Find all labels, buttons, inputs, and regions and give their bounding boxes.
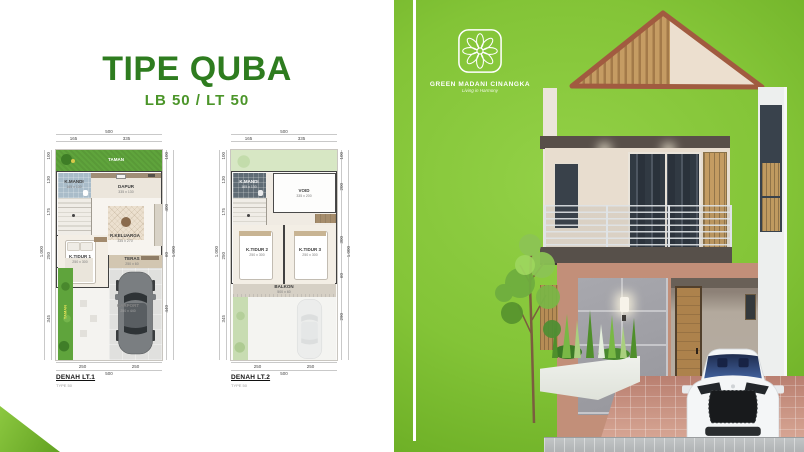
- dim-line: [56, 134, 162, 135]
- dim-label: 100: [221, 152, 226, 160]
- dim-label: 1.000: [214, 246, 219, 257]
- sink-icon: [116, 174, 126, 180]
- dim-label: 335: [298, 136, 306, 141]
- room-label-ktidur1: K.TIDUR 1250 x 300: [69, 254, 91, 264]
- dim-label: 290: [339, 313, 344, 321]
- dim-label: 250: [307, 364, 315, 369]
- bush-icon: [71, 159, 75, 163]
- plan-lt1-plot: TAMAN K.MANDI165 x 130 DAPUR335 x 130 R.…: [56, 150, 162, 360]
- page-subtitle: LB 50 / LT 50: [0, 92, 394, 109]
- dim-label: 130: [221, 176, 226, 184]
- dim-label: 130: [46, 176, 51, 184]
- dim-label: 500: [280, 129, 288, 134]
- room-label-taman-side: TAMAN: [63, 305, 68, 319]
- dim-label: 1.000: [346, 246, 351, 257]
- floor-plan-lt2: 500 165 335 100 130 175 250 345 1.000 10…: [231, 150, 337, 360]
- dim-line: [226, 150, 227, 360]
- dim-label: 60: [164, 252, 169, 257]
- room-label-kmandi: K.MANDI165 x 130: [239, 179, 258, 189]
- ghost-car-top-view: [289, 298, 330, 360]
- dim-label: 1.000: [171, 246, 176, 257]
- stove-icon: [148, 174, 155, 178]
- dim-line: [56, 141, 162, 142]
- dim-label: 100: [46, 152, 51, 160]
- dim-label: 250: [254, 364, 262, 369]
- dim-label: 200: [339, 183, 344, 191]
- dim-line: [56, 362, 162, 363]
- wardrobe-icon: [94, 237, 107, 242]
- interior-window: [745, 294, 756, 320]
- brand-logo: GREEN MADANI CINANGKA Living in Harmony: [424, 28, 536, 93]
- dim-label: 500: [105, 129, 113, 134]
- dim-line: [341, 150, 342, 360]
- paver-walkway: [544, 437, 804, 452]
- room-label-kmandi: K.MANDI165 x 130: [64, 179, 83, 189]
- page-title: TIPE QUBA: [0, 50, 394, 89]
- stairs-post-icon: [247, 214, 250, 217]
- pillow-icon: [67, 242, 80, 251]
- side-wood-panel: [762, 198, 780, 231]
- tree: [490, 225, 574, 425]
- toilet-icon: [258, 190, 263, 196]
- divider-line: [413, 0, 416, 441]
- dim-line: [231, 134, 337, 135]
- dim-label: 300: [339, 236, 344, 244]
- dim-label: 100: [339, 152, 344, 160]
- room-label-dapur: DAPUR335 x 130: [118, 184, 134, 194]
- room-label-rkeluarga: R.KELUARGA335 x 270: [110, 233, 140, 243]
- plan-lt2-plot: K.MANDI165 x 130 VOID335 x 200 K.TIDUR 2…: [231, 150, 337, 360]
- car-top-view: [115, 270, 156, 356]
- dim-line: [51, 150, 52, 360]
- side-wood-panel: [762, 163, 780, 196]
- plan-subcaption-lt2: TYPE 50: [231, 383, 247, 388]
- brochure-page: TIPE QUBA LB 50 / LT 50 500 165 335 100 …: [0, 0, 804, 452]
- dim-label: 175: [46, 208, 51, 216]
- dim-line: [231, 362, 337, 363]
- dim-label: 165: [70, 136, 78, 141]
- dim-line: [231, 141, 337, 142]
- headboard: [239, 231, 271, 236]
- dim-label: 400: [164, 204, 169, 212]
- flower-mandala-icon: [457, 28, 503, 74]
- green-corner-wedge: [0, 406, 60, 452]
- dim-label: 250: [46, 252, 51, 260]
- dim-line: [219, 150, 220, 360]
- dim-label: 500: [105, 371, 113, 376]
- dim-label: 345: [221, 315, 226, 323]
- wardrobe-icon: [315, 214, 336, 223]
- dim-label: 335: [123, 136, 131, 141]
- stepping-stone: [80, 300, 87, 307]
- room-label-teras: TERAS250 x 60: [124, 256, 139, 266]
- room-label-balkon: BALKON500 x 60: [274, 284, 293, 294]
- garden-strip-faded: [233, 297, 249, 361]
- floor-plan-lt1: 500 165 335 100 130 175 250 345 1.000 10…: [56, 150, 162, 360]
- toilet-icon: [83, 190, 88, 196]
- dim-label: 345: [46, 315, 51, 323]
- dim-line: [56, 370, 162, 371]
- plan-subcaption-lt1: TYPE 50: [56, 383, 72, 388]
- headboard: [294, 231, 326, 236]
- dim-label: 175: [221, 208, 226, 216]
- front-yard: [73, 288, 109, 360]
- gable-roof: [564, 6, 770, 92]
- dim-label: 100: [164, 152, 169, 160]
- dim-label: 500: [280, 371, 288, 376]
- shoe-cabinet-icon: [141, 256, 159, 261]
- dividing-wall: [283, 225, 285, 284]
- stairs-post-icon: [72, 214, 75, 217]
- room-label-void: VOID335 x 200: [296, 188, 311, 198]
- stepping-stone: [90, 315, 97, 322]
- room-label-ktidur3: K.TIDUR 3250 x 300: [299, 247, 321, 257]
- garden-area-faded: [231, 150, 337, 171]
- room-label-ktidur2: K.TIDUR 2250 x 300: [246, 247, 268, 257]
- plan-caption-lt1: DENAH LT.1: [56, 374, 95, 381]
- house-render-panel: GREEN MADANI CINANGKA Living in Harmony: [394, 0, 804, 452]
- sofa-icon: [154, 204, 162, 246]
- dim-line: [44, 150, 45, 360]
- dim-label: 60: [339, 273, 344, 278]
- car-front-view: [681, 346, 785, 443]
- dim-label: 165: [245, 136, 253, 141]
- dim-line: [231, 370, 337, 371]
- dim-label: 440: [164, 305, 169, 313]
- brand-tagline: Living in Harmony: [424, 88, 536, 93]
- room-label-carport: CARPORT250 x 440: [117, 303, 139, 313]
- round-table-icon: [121, 217, 131, 227]
- dim-label: 250: [132, 364, 140, 369]
- dim-label: 1.000: [39, 246, 44, 257]
- pillow-icon: [80, 242, 93, 251]
- plan-caption-lt2: DENAH LT.2: [231, 374, 270, 381]
- stepping-stone: [80, 330, 87, 337]
- dim-label: 250: [79, 364, 87, 369]
- room-label-taman: TAMAN: [108, 157, 124, 163]
- brand-name: GREEN MADANI CINANGKA: [424, 81, 536, 88]
- dim-label: 250: [221, 252, 226, 260]
